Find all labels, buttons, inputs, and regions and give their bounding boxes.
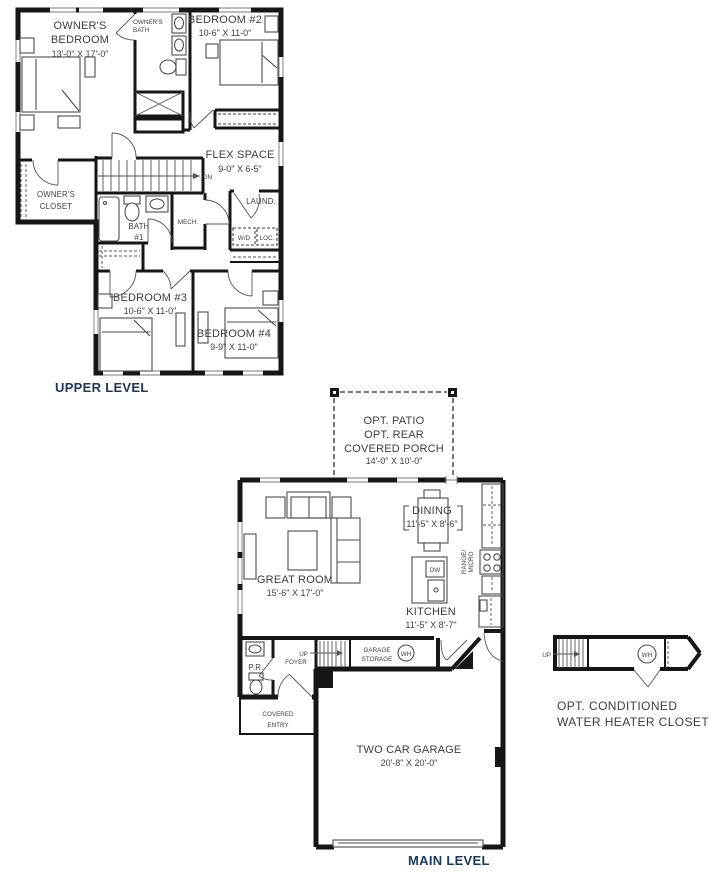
bedroom2-label: BEDROOM #2 xyxy=(188,14,262,26)
wd-label: W/D xyxy=(238,235,251,242)
stair-base-wall xyxy=(316,671,333,688)
great-room-label: GREAT ROOM xyxy=(257,574,333,586)
garage-storage: GARAGE STORAGE WH xyxy=(362,645,414,663)
foyer: FOYER xyxy=(278,659,312,697)
detail-stairs: UP xyxy=(542,639,583,668)
coffee-table xyxy=(288,531,317,570)
bedroom3-door xyxy=(163,271,190,289)
room-mech: MECH. xyxy=(178,200,229,226)
mech-label: MECH. xyxy=(178,219,199,226)
porch-label-2: OPT. REAR xyxy=(364,429,424,441)
dresser xyxy=(85,57,95,77)
sofa xyxy=(287,492,330,518)
detail-up-label: UP xyxy=(542,652,551,659)
detail-label-1: OPT. CONDITIONED xyxy=(557,699,677,713)
great-room-dims: 15'-6" X 17'-0" xyxy=(267,588,324,598)
bedroom2-door xyxy=(190,110,213,128)
stairs-up-label: UP xyxy=(299,651,308,658)
upper-stairs: DN xyxy=(98,160,213,191)
garage-storage-label-2: STORAGE xyxy=(362,656,393,663)
sink xyxy=(146,196,168,212)
floor-plan-sheet: OWNER'S BEDROOM 13'-0" X 17'-0" OWNER'S … xyxy=(0,0,721,873)
svg-text:WH: WH xyxy=(401,651,412,658)
bedroom4-door xyxy=(228,271,252,296)
nightstand xyxy=(20,115,34,130)
bedroom3-closet-shelf xyxy=(99,246,140,268)
bed xyxy=(100,318,152,371)
room-bath1: BATH #1 xyxy=(99,196,172,243)
range-micro-label: RANGE/ MICRO xyxy=(461,550,475,574)
owners-bed xyxy=(22,57,80,112)
owners-bath-label-2: BATH xyxy=(133,27,150,34)
kitchen-dims: 11'-5" X 8'-7" xyxy=(405,620,456,630)
bench xyxy=(58,116,80,128)
bedroom2-dims: 10-6" X 11-0" xyxy=(199,28,252,38)
upper-level-plan: OWNER'S BEDROOM 13'-0" X 17'-0" OWNER'S … xyxy=(14,6,285,395)
detail-label-2: WATER HEATER CLOSET xyxy=(557,715,709,729)
stairs-dn-label: DN xyxy=(203,174,213,181)
room-bedroom4: BEDROOM #4 9-9" X 11-0" xyxy=(197,271,278,358)
room-owners-closet: OWNER'S CLOSET xyxy=(21,160,75,219)
garage-storage-label-1: GARAGE xyxy=(364,647,391,654)
svg-text:WH: WH xyxy=(642,652,653,659)
porch-label-3: COVERED PORCH xyxy=(344,443,444,455)
covered-entry-label-2: ENTRY xyxy=(267,722,289,729)
room-powder: P.R. xyxy=(246,642,273,694)
bedroom3-label: BEDROOM #3 xyxy=(113,292,187,304)
dresser xyxy=(176,313,185,346)
garage-dims: 20'-8" X 20'-0" xyxy=(381,758,438,768)
toilet xyxy=(124,196,140,221)
foyer-label: FOYER xyxy=(285,659,307,666)
dining-dims: 11'-5" X 8'-6" xyxy=(406,519,457,529)
bath1-label-2: #1 xyxy=(134,233,143,242)
closet-shelving xyxy=(21,164,26,219)
owners-bedroom-label-2: BEDROOM xyxy=(51,34,109,46)
room-owners-bedroom: OWNER'S BEDROOM 13'-0" X 17'-0" xyxy=(20,20,136,158)
room-flex-space: FLEX SPACE 9-0" X 6-5" xyxy=(205,149,274,174)
closet-door xyxy=(634,670,660,687)
laundry-label: LAUND. xyxy=(246,197,276,206)
dining-label: DINING xyxy=(412,505,452,517)
room-garage: TWO CAR GARAGE 20'-8" X 20'-0" xyxy=(333,744,503,847)
main-level-plan: OPT. PATIO OPT. REAR COVERED PORCH 14'-0… xyxy=(236,388,503,868)
owners-closet-door xyxy=(33,160,58,185)
bedroom3-dims: 10-6" X 11-0" xyxy=(124,306,177,316)
toilet xyxy=(249,673,263,694)
mech-door xyxy=(205,200,229,224)
shower xyxy=(135,92,183,116)
optional-porch: OPT. PATIO OPT. REAR COVERED PORCH 14'-0… xyxy=(330,388,457,477)
bed xyxy=(220,40,278,85)
bedroom4-dims: 9-9" X 11-0" xyxy=(210,342,258,352)
covered-entry: COVERED ENTRY xyxy=(240,697,316,734)
main-level-title: MAIN LEVEL xyxy=(408,853,490,868)
chair xyxy=(424,490,440,498)
range xyxy=(480,550,503,574)
svg-text:MICRO: MICRO xyxy=(468,551,475,572)
chair xyxy=(424,543,440,551)
sink xyxy=(246,642,264,656)
owners-bedroom-label-1: OWNER'S xyxy=(53,20,106,32)
wall-pier xyxy=(495,747,503,767)
front-door xyxy=(278,674,312,697)
linen-closet xyxy=(135,119,183,132)
tv-console xyxy=(244,534,256,579)
nightstand xyxy=(263,291,278,305)
room-great-room: GREAT ROOM 15'-6" X 17'-0" xyxy=(244,492,360,598)
water-heater-icon: WH xyxy=(638,645,656,663)
side-table xyxy=(266,497,285,518)
floor-plan-drawing: OWNER'S BEDROOM 13'-0" X 17'-0" OWNER'S … xyxy=(0,0,721,873)
bathtub xyxy=(99,197,119,241)
powder-room-label: P.R. xyxy=(249,663,264,672)
porch-label-1: OPT. PATIO xyxy=(364,415,425,427)
garage-label: TWO CAR GARAGE xyxy=(357,744,462,756)
owners-bedroom-door xyxy=(112,133,136,158)
covered-entry-label-1: COVERED xyxy=(262,711,294,718)
closet-doors xyxy=(218,114,278,124)
room-dining: DINING 11'-5" X 8'-6" xyxy=(404,490,462,551)
owners-closet-label-2: CLOSET xyxy=(40,202,72,211)
loc-label: LOC. xyxy=(260,235,275,242)
flex-space-dims: 9-0" X 6-5" xyxy=(218,164,261,174)
sectional-sofa xyxy=(331,518,360,583)
room-laundry: LAUND. W/D LOC. xyxy=(230,193,281,262)
dishwasher-label: DW xyxy=(430,567,441,574)
owners-closet-label-1: OWNER'S xyxy=(37,190,75,199)
flex-space-label: FLEX SPACE xyxy=(205,149,274,161)
toilet xyxy=(160,59,186,75)
bath1-door xyxy=(148,219,172,243)
kitchen-label: KITCHEN xyxy=(406,606,456,618)
kitchen-counters xyxy=(479,484,503,627)
nightstand xyxy=(206,44,218,58)
nightstand xyxy=(20,38,34,53)
owners-bath-label-1: OWNER'S xyxy=(133,19,163,26)
porch-dims: 14'-0" X 10'-0" xyxy=(366,456,423,466)
svg-text:RANGE/: RANGE/ xyxy=(461,550,468,574)
upper-level-title: UPPER LEVEL xyxy=(55,380,149,395)
kitchen-island: DW xyxy=(412,557,447,603)
garage-door xyxy=(333,840,483,847)
room-owners-bath: OWNER'S BATH xyxy=(116,14,186,132)
water-heater-icon: WH xyxy=(398,645,414,661)
bedroom4-label: BEDROOM #4 xyxy=(197,328,271,340)
side-table xyxy=(332,497,351,518)
dresser xyxy=(265,16,278,32)
bath1-label-1: BATH xyxy=(128,222,149,231)
water-heater-closet-detail: UP WH OPT. CONDITIONED WATER HEATER CLOS… xyxy=(542,637,709,729)
